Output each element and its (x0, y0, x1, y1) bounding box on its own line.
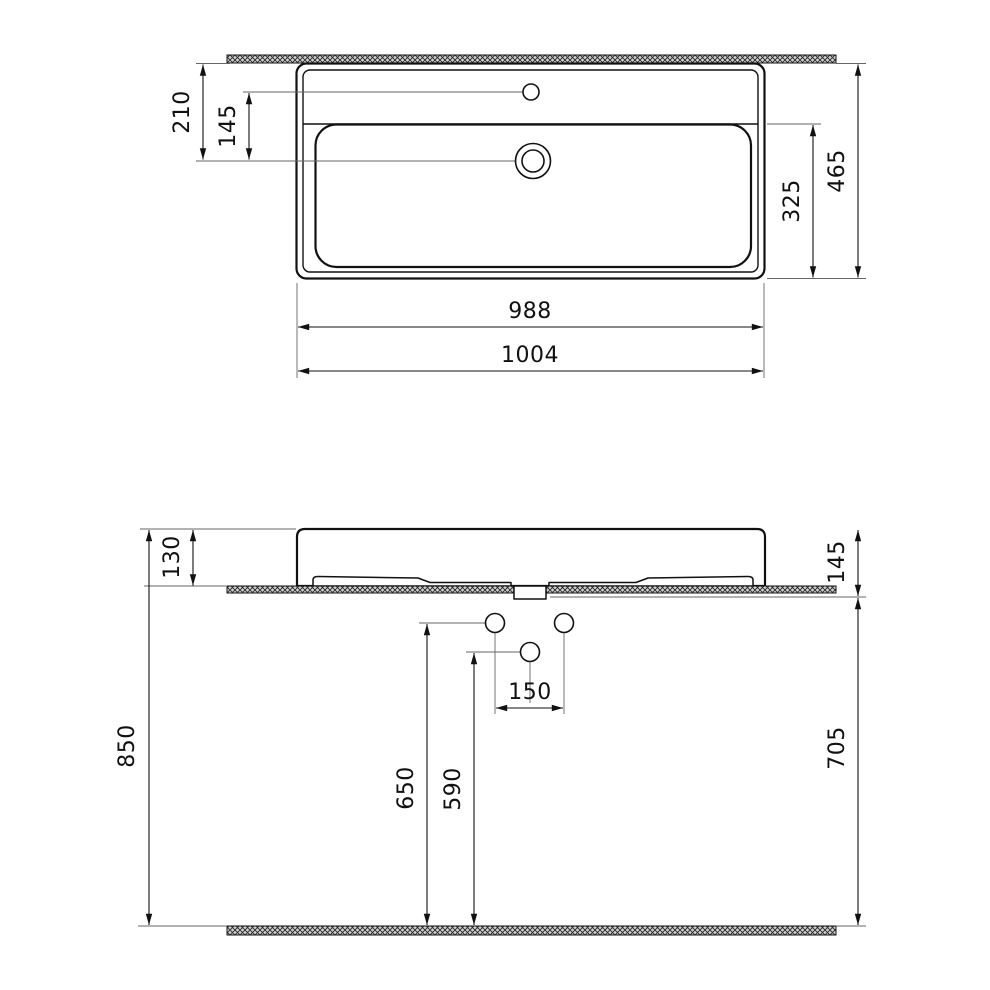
dim-label-325: 325 (780, 179, 805, 223)
drawing-canvas: 210 145 325 465 988 1004 (0, 0, 990, 990)
front-view: 130 850 145 705 650 590 150 (115, 529, 866, 935)
dim-label-150: 150 (508, 680, 552, 705)
floor-section-hatch (227, 926, 836, 935)
dim-label-1004: 1004 (501, 343, 559, 368)
drain-outlet-boss (514, 586, 546, 599)
dim-label-650: 650 (394, 766, 419, 810)
drain-hole-inner (522, 150, 544, 172)
dim-label-465: 465 (825, 149, 850, 193)
dim-label-705: 705 (825, 726, 850, 770)
dim-label-145: 145 (216, 104, 241, 148)
dim-label-590: 590 (441, 767, 466, 811)
mounting-hole-upper-left (486, 614, 505, 633)
dim-label-988: 988 (508, 299, 552, 324)
dim-label-210: 210 (170, 90, 195, 134)
dim-label-130: 130 (160, 535, 185, 579)
dim-label-145-front: 145 (825, 540, 850, 584)
mounting-hole-lower-center (521, 643, 540, 662)
dim-label-850: 850 (115, 724, 140, 768)
top-view: 210 145 325 465 988 1004 (170, 55, 866, 378)
faucet-hole (523, 84, 539, 100)
washbasin-technical-drawing: 210 145 325 465 988 1004 (0, 0, 990, 990)
wall-section-hatch-top-view (227, 55, 836, 63)
mounting-hole-upper-right (555, 614, 574, 633)
